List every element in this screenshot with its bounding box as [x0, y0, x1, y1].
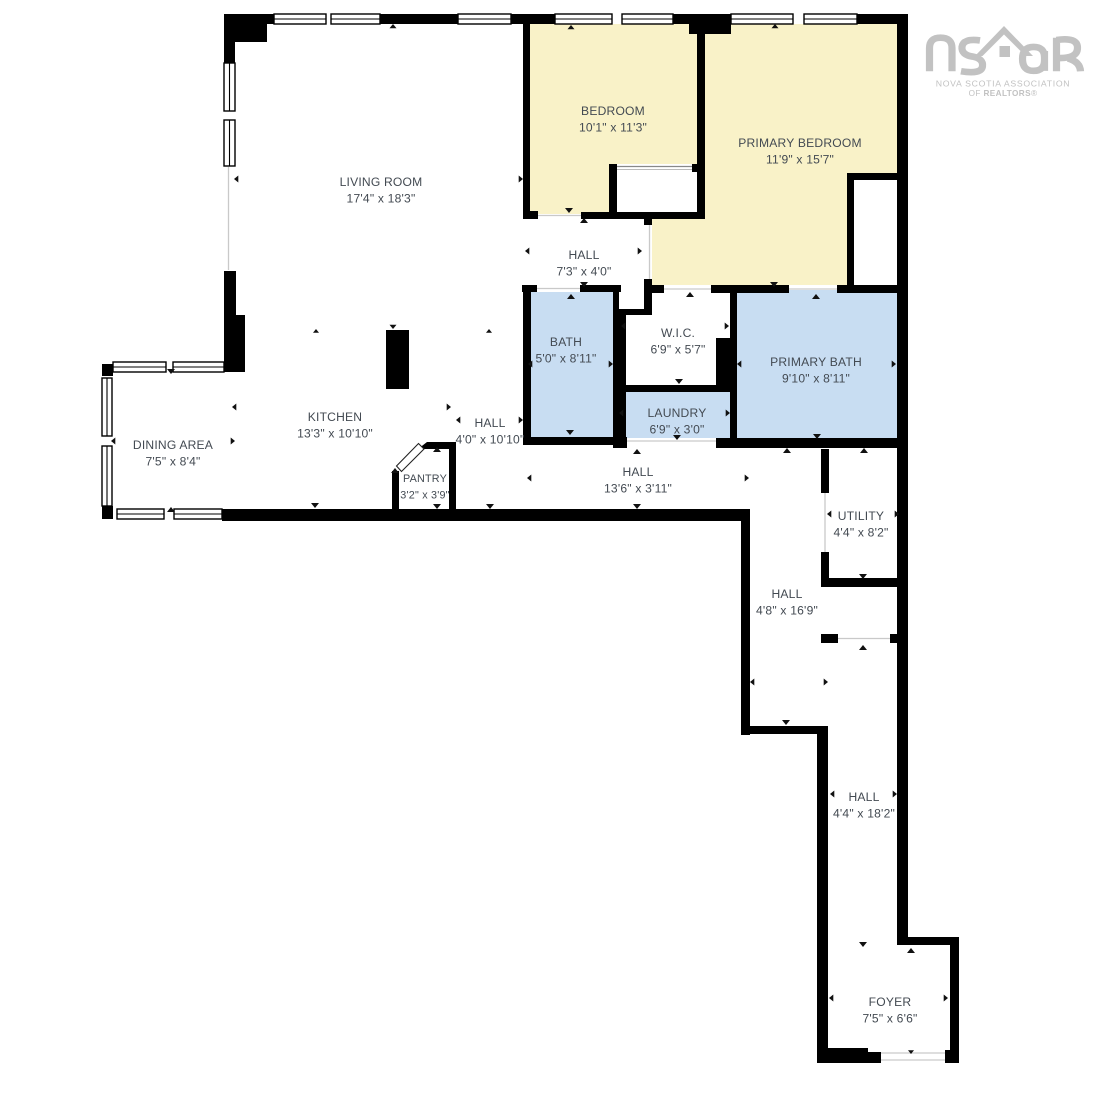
svg-text:PANTRY: PANTRY	[403, 473, 447, 485]
svg-text:4'4" x 8'2": 4'4" x 8'2"	[833, 526, 888, 540]
svg-text:W.I.C.: W.I.C.	[661, 326, 695, 340]
svg-text:PRIMARY BATH: PRIMARY BATH	[770, 355, 862, 369]
svg-text:HALL: HALL	[848, 790, 879, 804]
svg-text:KITCHEN: KITCHEN	[308, 410, 362, 424]
svg-text:6'9" x 5'7": 6'9" x 5'7"	[650, 343, 705, 357]
svg-text:HALL: HALL	[474, 416, 505, 430]
svg-text:PRIMARY BEDROOM: PRIMARY BEDROOM	[738, 136, 862, 150]
svg-text:11'9" x 15'7": 11'9" x 15'7"	[766, 153, 834, 167]
svg-text:5'0" x 8'11": 5'0" x 8'11"	[535, 352, 596, 366]
svg-text:BATH: BATH	[550, 335, 582, 349]
svg-text:FOYER: FOYER	[869, 995, 912, 1009]
svg-text:6'9" x 3'0": 6'9" x 3'0"	[649, 423, 704, 437]
svg-text:HALL: HALL	[568, 248, 599, 262]
svg-text:7'5" x 6'6": 7'5" x 6'6"	[862, 1012, 917, 1026]
svg-text:7'3" x 4'0": 7'3" x 4'0"	[556, 265, 611, 279]
svg-text:3'2" x 3'9": 3'2" x 3'9"	[400, 490, 449, 502]
svg-text:LIVING ROOM: LIVING ROOM	[340, 175, 423, 189]
svg-text:LAUNDRY: LAUNDRY	[648, 406, 707, 420]
svg-text:NOVA SCOTIA ASSOCIATION: NOVA SCOTIA ASSOCIATION	[936, 79, 1071, 89]
svg-text:17'4" x 18'3": 17'4" x 18'3"	[347, 192, 416, 206]
svg-text:DINING AREA: DINING AREA	[133, 438, 214, 452]
svg-text:9'10" x 8'11": 9'10" x 8'11"	[782, 372, 850, 386]
svg-text:UTILITY: UTILITY	[838, 509, 884, 523]
svg-text:HALL: HALL	[771, 587, 802, 601]
svg-text:10'1" x 11'3": 10'1" x 11'3"	[579, 121, 647, 135]
svg-text:BEDROOM: BEDROOM	[581, 104, 645, 118]
svg-text:OF REALTORS®: OF REALTORS®	[969, 89, 1038, 98]
svg-text:13'6" x 3'11": 13'6" x 3'11"	[604, 482, 672, 496]
svg-text:HALL: HALL	[622, 465, 653, 479]
svg-text:13'3" x 10'10": 13'3" x 10'10"	[297, 427, 373, 441]
svg-text:7'5" x 8'4": 7'5" x 8'4"	[145, 455, 200, 469]
svg-text:4'4" x 18'2": 4'4" x 18'2"	[833, 807, 895, 821]
svg-text:4'8" x 16'9": 4'8" x 16'9"	[756, 604, 818, 618]
svg-text:4'0" x 10'10": 4'0" x 10'10"	[456, 433, 525, 447]
